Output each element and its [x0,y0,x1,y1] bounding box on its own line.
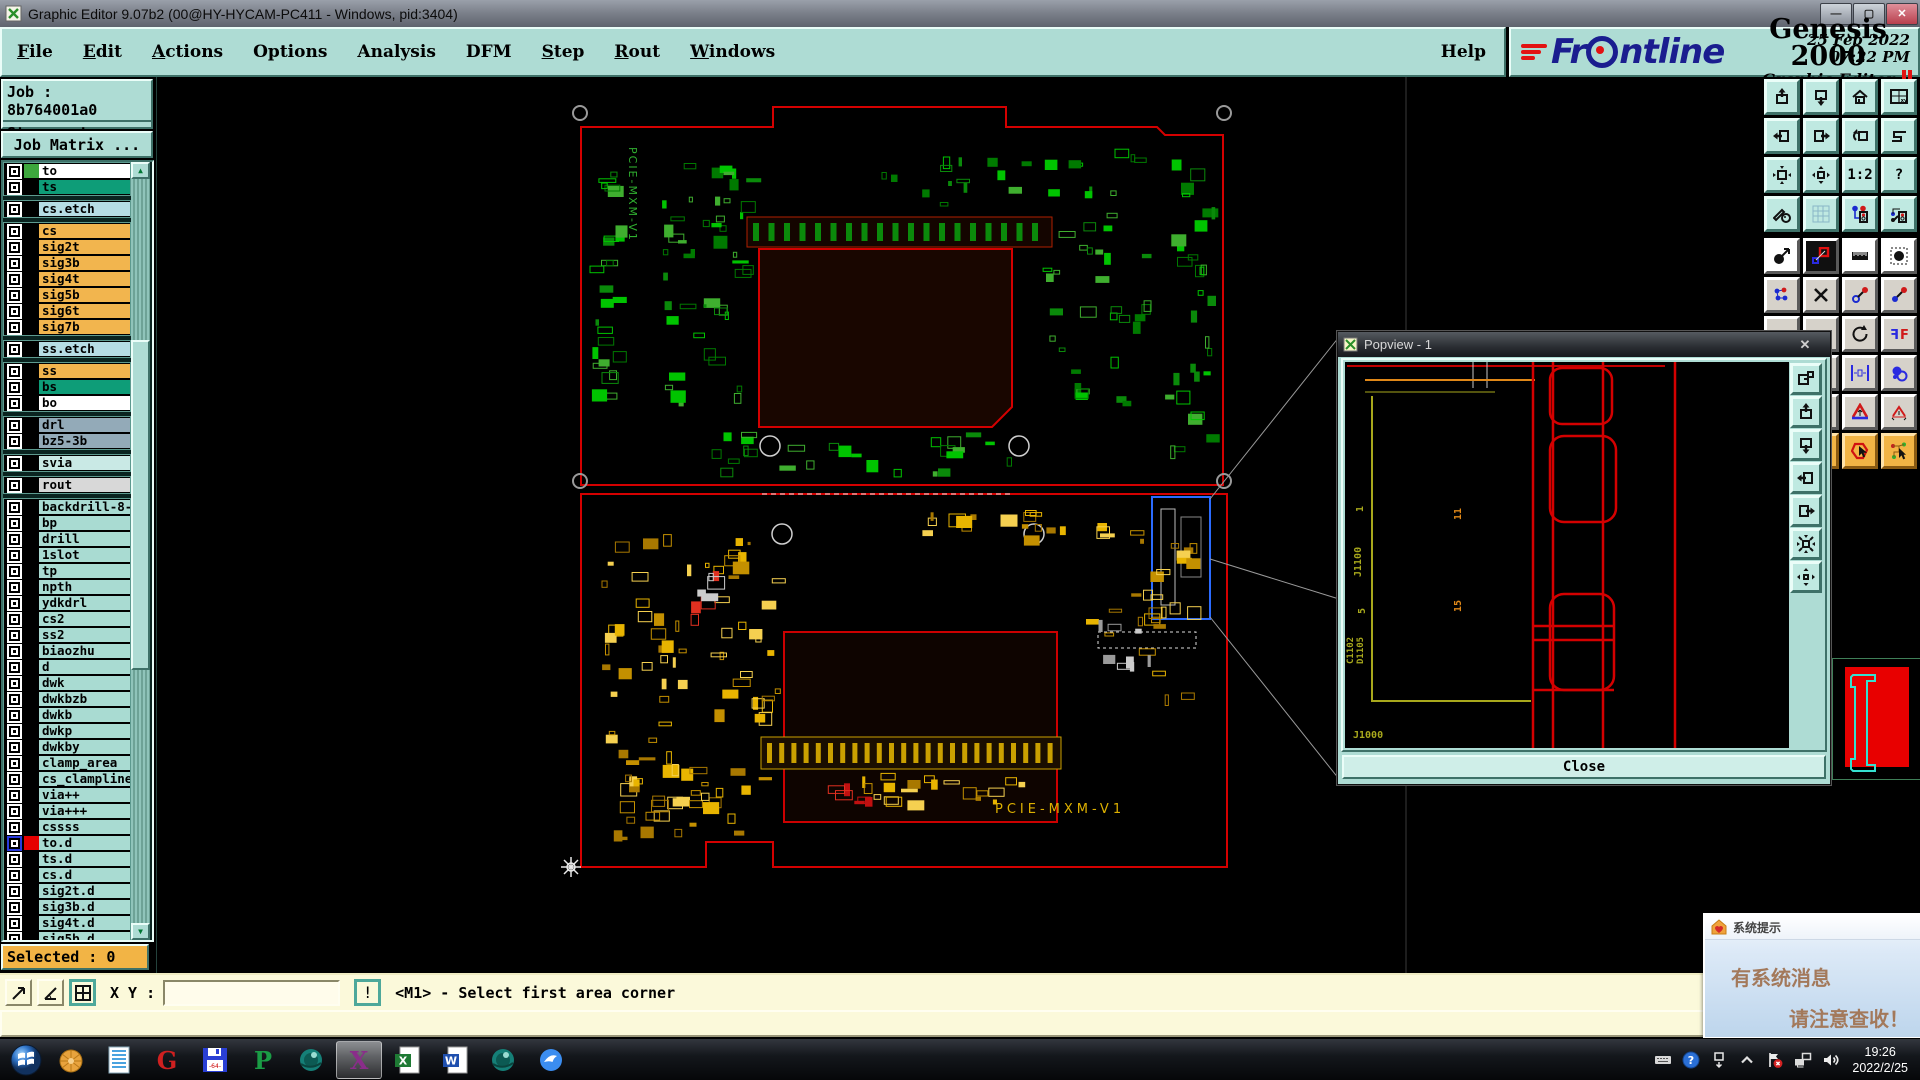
notification-line1: 有系统消息 [1731,962,1920,991]
svg-text:PCIE-MXM-V1: PCIE-MXM-V1 [626,147,639,242]
popview-pan-down-button[interactable] [1790,429,1822,461]
layer-row-dwkb[interactable]: dwkb [4,707,130,723]
layer-name[interactable]: npth [39,580,130,594]
layer-color-swatch[interactable] [24,288,39,302]
layer-color-swatch[interactable] [24,628,39,642]
layer-name[interactable]: cs2 [39,612,130,626]
select-feature-button[interactable] [1764,238,1800,274]
layer-row-sig4t[interactable]: sig4t [4,271,130,287]
layer-checkbox[interactable] [7,272,22,287]
svg-text:W: W [445,1055,457,1068]
layer-color-swatch[interactable] [24,342,39,356]
layer-list: totscs.etchcssig2tsig3bsig4tsig5bsig6tsi… [1,160,154,942]
layer-name[interactable]: d [39,660,130,674]
layer-name[interactable]: sig3b.d [39,900,130,914]
scale-1-2-button[interactable]: 1:2 [1842,157,1878,193]
layer-checkbox[interactable] [7,596,22,611]
layer-name[interactable]: drl [39,418,130,432]
layer-name[interactable]: to [39,164,130,178]
layer-row-ts.d[interactable]: ts.d [4,851,130,867]
layer-color-swatch[interactable] [24,272,39,286]
taskbar-backup-64-icon[interactable]: -64- [192,1041,238,1079]
menu-rout[interactable]: Rout [614,42,660,62]
layer-row-sig6t[interactable]: sig6t [4,303,130,319]
layer-row-ss[interactable]: ss [4,363,130,379]
layer-color-swatch[interactable] [24,548,39,562]
copy-point-button[interactable] [1842,277,1878,313]
mirror-ff-button[interactable]: FF [1881,316,1917,352]
layer-checkbox[interactable] [7,478,22,493]
prompt-message: <M1> - Select first area corner [395,984,675,1002]
scroll-up-button[interactable]: ▲ [131,162,150,179]
layer-group: drlbz5-3b [3,416,131,450]
layer-name[interactable]: sig4t [39,272,130,286]
layer-name[interactable]: drill [39,532,130,546]
layer-checkbox[interactable] [7,418,22,433]
layer-checkbox[interactable] [7,660,22,675]
layer-row-to[interactable]: to [4,163,130,179]
scroll-thumb[interactable] [131,340,150,670]
pan-up-button[interactable] [1764,79,1800,115]
popview-close-x[interactable]: ✕ [1788,337,1822,353]
layer-color-swatch[interactable] [24,418,39,432]
layer-checkbox[interactable] [7,644,22,659]
layer-color-swatch[interactable] [24,456,39,470]
layer-checkbox[interactable] [7,612,22,627]
layer-color-swatch[interactable] [24,434,39,448]
layer-row-cs[interactable]: cs [4,223,130,239]
layer-name[interactable]: sig4t.d [39,916,130,930]
layer-row-sig2t.d[interactable]: sig2t.d [4,883,130,899]
pv-label-pin1: 1 [1355,506,1366,512]
scroll-down-button[interactable]: ▼ [131,923,150,940]
overlap-circles-button[interactable] [1881,355,1917,391]
menu-options[interactable]: Options [253,42,327,62]
layer-checkbox[interactable] [7,320,22,335]
layer-checkbox[interactable] [7,708,22,723]
layer-group: rout [3,476,131,494]
layer-color-swatch[interactable] [24,240,39,254]
layer-row-to.d[interactable]: to.d [4,835,130,851]
net-colors-2-button[interactable] [1881,196,1917,232]
layer-name[interactable]: ts [39,180,130,194]
highlight-4-button[interactable] [1881,433,1917,469]
layer-row-via+++[interactable]: via+++ [4,803,130,819]
taskbar-genesis-launcher-icon[interactable]: G [144,1041,190,1079]
layer-checkbox[interactable] [7,628,22,643]
layer-checkbox[interactable] [7,288,22,303]
menu-windows[interactable]: Windows [690,42,775,62]
layer-row-ss.etch[interactable]: ss.etch [4,341,130,357]
layer-color-swatch[interactable] [24,596,39,610]
layer-checkbox[interactable] [7,676,22,691]
notification-title: 系统提示 [1733,919,1781,936]
menu-actions[interactable]: Actions [152,42,223,62]
layer-row-drill[interactable]: drill [4,531,130,547]
layer-row-1slot[interactable]: 1slot [4,547,130,563]
layer-checkbox[interactable] [7,500,22,515]
layer-row-sig3b[interactable]: sig3b [4,255,130,271]
layer-name[interactable]: rout [39,478,130,492]
menu-step[interactable]: Step [542,42,585,62]
grid-toggle-button[interactable] [1803,196,1839,232]
layer-name[interactable]: to.d [39,836,130,850]
layer-checkbox[interactable] [7,240,22,255]
layer-checkbox[interactable] [7,788,22,803]
tray-help-icon[interactable]: ? [1680,1049,1702,1071]
layer-color-swatch[interactable] [24,532,39,546]
layer-name[interactable]: svia [39,456,130,470]
layer-row-sig5b[interactable]: sig5b [4,287,130,303]
tray-flag-alert-icon[interactable] [1764,1049,1786,1071]
layer-checkbox[interactable] [7,804,22,819]
layer-name[interactable]: ss.etch [39,342,130,356]
layer-color-swatch[interactable] [24,820,39,834]
svg-text:F: F [1890,328,1899,343]
layer-color-swatch[interactable] [24,692,39,706]
layer-name[interactable]: cs_clampline [39,772,130,786]
layer-checkbox[interactable] [7,740,22,755]
layer-checkbox[interactable] [7,516,22,531]
job-matrix-button[interactable]: Job Matrix ... [1,131,153,158]
layer-scrollbar[interactable]: ▲ ▼ [131,162,150,940]
layer-color-swatch[interactable] [24,644,39,658]
layer-row-cssss[interactable]: cssss [4,819,130,835]
layer-color-swatch[interactable] [24,564,39,578]
tray-network-icon[interactable] [1792,1049,1814,1071]
layer-checkbox[interactable] [7,180,22,195]
pv-label-d1105: D1105 [1356,637,1366,664]
layer-name[interactable]: sig6t [39,304,130,318]
taskbar-clock[interactable]: 19:26 2022/2/25 [1852,1044,1908,1076]
font-a-small-button[interactable] [1881,394,1917,430]
layer-row-via++[interactable]: via++ [4,787,130,803]
svg-text:-64-: -64- [209,1063,221,1070]
layer-color-swatch[interactable] [24,478,39,492]
layer-name[interactable]: bs [39,380,130,394]
logo-o-icon [1586,36,1618,68]
layer-color-swatch[interactable] [24,580,39,594]
angle-measure-button[interactable] [37,979,64,1006]
layer-color-swatch[interactable] [24,676,39,690]
taskbar-excel-icon[interactable]: X [384,1041,430,1079]
taskbar-cam-tool-2-icon[interactable] [480,1041,526,1079]
layer-name[interactable]: sig2t [39,240,130,254]
layer-row-svia[interactable]: svia [4,455,130,471]
menu-edit[interactable]: Edit [83,42,122,62]
system-notification[interactable]: 系统提示 有系统消息 请注意查收！ [1703,913,1920,1039]
layer-checkbox[interactable] [7,820,22,835]
layer-color-swatch[interactable] [24,836,39,850]
resize-arrow-button[interactable] [5,979,32,1006]
layer-checkbox[interactable] [7,256,22,271]
layer-name[interactable]: via+++ [39,804,130,818]
rotate-feature-button[interactable] [1842,316,1878,352]
layer-row-sig4t.d[interactable]: sig4t.d [4,915,130,931]
net-points-button[interactable] [1764,277,1800,313]
layer-color-swatch[interactable] [24,320,39,334]
xy-input[interactable] [163,980,340,1006]
layer-row-drl[interactable]: drl [4,417,130,433]
net-colors-1-button[interactable] [1842,196,1878,232]
layer-name[interactable]: sig5b [39,288,130,302]
layer-name[interactable]: biaozhu [39,644,130,658]
layer-checkbox[interactable] [7,900,22,915]
tray-window-flip-icon[interactable] [1708,1049,1730,1071]
layer-row-biaozhu[interactable]: biaozhu [4,643,130,659]
layer-color-swatch[interactable] [24,256,39,270]
layer-color-swatch[interactable] [24,500,39,514]
layer-name[interactable]: ss [39,364,130,378]
layer-name[interactable]: ss2 [39,628,130,642]
alert-button[interactable]: ! [354,979,381,1006]
layer-checkbox[interactable] [7,756,22,771]
layer-name[interactable]: dwkb [39,708,130,722]
start-button[interactable] [6,1040,46,1080]
notification-line2: 请注意查收！ [1789,1003,1920,1032]
pv-label-j1100: J1100 [1353,547,1364,577]
layer-row-dwk[interactable]: dwk [4,675,130,691]
layer-checkbox[interactable] [7,916,22,931]
help-query-button[interactable]: ? [1881,157,1917,193]
view-home-button[interactable] [1842,79,1878,115]
layer-row-cs_clampline[interactable]: cs_clampline [4,771,130,787]
layer-row-bo[interactable]: bo [4,395,130,411]
layer-name[interactable]: ts.d [39,852,130,866]
layer-checkbox[interactable] [7,164,22,179]
layer-row-npth[interactable]: npth [4,579,130,595]
delete-feature-button[interactable] [1803,277,1839,313]
layer-color-swatch[interactable] [24,916,39,930]
layer-row-tp[interactable]: tp [4,563,130,579]
layer-checkbox[interactable] [7,932,22,943]
taskbar-notes-app-icon[interactable] [96,1041,142,1079]
highlight-3-button[interactable] [1842,433,1878,469]
layer-checkbox[interactable] [7,456,22,471]
clock-time: 19:26 [1852,1044,1908,1060]
pan-down-button[interactable] [1803,79,1839,115]
layer-color-swatch[interactable] [24,516,39,530]
layer-checkbox[interactable] [7,692,22,707]
symbol-preview [1832,658,1920,780]
layer-row-bp[interactable]: bp [4,515,130,531]
layer-color-swatch[interactable] [24,164,39,178]
menu-analysis[interactable]: Analysis [357,42,436,62]
layer-color-swatch[interactable] [24,788,39,802]
view-window-xy-button[interactable]: xy [1881,79,1917,115]
layer-name[interactable]: cs [39,224,130,238]
taskbar-word-icon[interactable]: W [432,1041,478,1079]
layer-color-swatch[interactable] [24,180,39,194]
layer-color-swatch[interactable] [24,756,39,770]
layer-name[interactable]: bp [39,516,130,530]
popview-pan-right-button[interactable] [1790,495,1822,527]
move-point-button[interactable] [1881,277,1917,313]
message-bar [0,1010,1920,1037]
layer-checkbox[interactable] [7,532,22,547]
layer-name[interactable]: sig3b [39,256,130,270]
layer-color-swatch[interactable] [24,868,39,882]
layer-checkbox[interactable] [7,852,22,867]
layer-name[interactable]: clamp_area [39,756,130,770]
layer-name[interactable]: dwkbzb [39,692,130,706]
draw-tools-button[interactable] [1764,196,1800,232]
layer-checkbox[interactable] [7,772,22,787]
popview-icon [1343,337,1358,352]
layer-row-d[interactable]: d [4,659,130,675]
ruler-measure-button[interactable] [1842,238,1878,274]
taskbar-paltalk-app-icon[interactable]: P [240,1041,286,1079]
pan-right-button[interactable] [1803,118,1839,154]
layer-name[interactable]: 1slot [39,548,130,562]
layer-color-swatch[interactable] [24,612,39,626]
menu-row: FileEditActionsOptionsAnalysisDFMStepRou… [0,27,1920,77]
layer-row-sig5b.d[interactable]: sig5b.d [4,931,130,942]
layer-name[interactable]: sig5b.d [39,932,130,942]
layer-color-swatch[interactable] [24,900,39,914]
layer-name[interactable]: dwk [39,676,130,690]
layer-color-swatch[interactable] [24,380,39,394]
layer-row-bs[interactable]: bs [4,379,130,395]
popview-zoom-expand-button[interactable] [1790,561,1822,593]
layer-checkbox[interactable] [7,304,22,319]
layer-color-swatch[interactable] [24,724,39,738]
menu-dfm[interactable]: DFM [466,42,512,62]
view-back-button[interactable] [1842,118,1878,154]
layer-name[interactable]: ydkdrl [39,596,130,610]
layer-color-swatch[interactable] [24,740,39,754]
taskbar-cam-tool-icon[interactable] [288,1041,334,1079]
layer-color-swatch[interactable] [24,804,39,818]
taskbar-thunder-app-icon[interactable] [528,1041,574,1079]
selected-count: Selected : 0 [1,944,149,970]
popview-pan-left-button[interactable] [1790,462,1822,494]
layer-row-clamp_area[interactable]: clamp_area [4,755,130,771]
popview-canvas[interactable]: 1 J1100 5 C1102 D1105 11 15 J1000 [1345,362,1789,748]
layer-checkbox[interactable] [7,724,22,739]
layer-name[interactable]: cs.d [39,868,130,882]
layer-name[interactable]: backdrill-8- [39,500,130,514]
layer-name[interactable]: cssss [39,820,130,834]
pv-label-pin15: 15 [1453,600,1464,612]
layer-color-swatch[interactable] [24,304,39,318]
layer-name[interactable]: dwkby [39,740,130,754]
layer-color-swatch[interactable] [24,708,39,722]
layer-name[interactable]: via++ [39,788,130,802]
layer-row-cs.etch[interactable]: cs.etch [4,201,130,217]
layer-color-swatch[interactable] [24,396,39,410]
layer-name[interactable]: sig7b [39,320,130,334]
taskbar-exceed-x-icon[interactable]: X [336,1041,382,1079]
layer-checkbox[interactable] [7,884,22,899]
layer-name[interactable]: bo [39,396,130,410]
pad-select-button[interactable] [1881,238,1917,274]
layer-row-ts[interactable]: ts [4,179,130,195]
shape-edit-button[interactable] [1803,238,1839,274]
pv-label-c1102: C1102 [1346,637,1356,664]
job-label: Job : 8b764001a0 [3,81,151,122]
layer-row-cs.d[interactable]: cs.d [4,867,130,883]
layer-name[interactable]: sig2t.d [39,884,130,898]
layer-color-swatch[interactable] [24,884,39,898]
layer-checkbox[interactable] [7,564,22,579]
layer-row-cs2[interactable]: cs2 [4,611,130,627]
layer-checkbox[interactable] [7,548,22,563]
layer-name[interactable]: tp [39,564,130,578]
pv-label-j1000: J1000 [1353,730,1383,741]
tray-volume-icon[interactable] [1820,1049,1842,1071]
serpentine-button[interactable] [1881,118,1917,154]
layer-row-backdrill-8-[interactable]: backdrill-8- [4,499,130,515]
layer-checkbox[interactable] [7,380,22,395]
job-step-panel: Job : 8b764001a0 Step: set [1,79,153,129]
layer-checkbox[interactable] [7,224,22,239]
zoom-in-button[interactable] [1764,157,1800,193]
layer-name[interactable]: bz5-3b [39,434,130,448]
popview-close-button[interactable]: Close [1342,755,1826,779]
popview-toolstrip [1789,362,1823,748]
pan-left-button[interactable] [1764,118,1800,154]
layer-checkbox[interactable] [7,580,22,595]
layer-row-dwkby[interactable]: dwkby [4,739,130,755]
layer-color-swatch[interactable] [24,224,39,238]
layer-name[interactable]: cs.etch [39,202,130,216]
font-a-large-button[interactable] [1842,394,1878,430]
tray-keyboard-icon[interactable] [1652,1049,1674,1071]
layer-row-ydkdrl[interactable]: ydkdrl [4,595,130,611]
layer-row-bz5-3b[interactable]: bz5-3b [4,433,130,449]
notification-icon [1710,918,1728,936]
layer-checkbox[interactable] [7,342,22,357]
layer-row-sig7b[interactable]: sig7b [4,319,130,335]
menu-help[interactable]: Help [1441,42,1486,62]
layer-color-swatch[interactable] [24,932,39,942]
grid-snap-button[interactable] [69,979,96,1006]
tray-chevron-up-icon[interactable] [1736,1049,1758,1071]
measure-gap-button[interactable] [1842,355,1878,391]
layer-row-rout[interactable]: rout [4,477,130,493]
zoom-out-button[interactable] [1803,157,1839,193]
layer-checkbox[interactable] [7,202,22,217]
layer-color-swatch[interactable] [24,364,39,378]
popview-zoom-contract-button[interactable] [1790,528,1822,560]
popview-pan-up-button[interactable] [1790,396,1822,428]
popview-window-export-button[interactable] [1790,363,1822,395]
layer-row-sig2t[interactable]: sig2t [4,239,130,255]
layer-color-swatch[interactable] [24,772,39,786]
taskbar-shell-app-icon[interactable] [48,1041,94,1079]
layer-row-dwkp[interactable]: dwkp [4,723,130,739]
window-titlebar: Graphic Editor 9.07b2 (00@HY-HYCAM-PC411… [0,0,1920,27]
layer-group: tots [3,162,131,196]
xy-label: X Y : [110,984,155,1002]
layer-color-swatch[interactable] [24,660,39,674]
layer-color-swatch[interactable] [24,852,39,866]
layer-row-ss2[interactable]: ss2 [4,627,130,643]
layer-name[interactable]: dwkp [39,724,130,738]
layer-checkbox[interactable] [7,868,22,883]
popview-dialog[interactable]: Popview - 1 ✕ 1 J1100 5 C1102 D1105 11 1… [1337,331,1831,785]
layer-checkbox[interactable] [7,396,22,411]
layer-color-swatch[interactable] [24,202,39,216]
layer-checkbox[interactable] [7,836,22,851]
menu-file[interactable]: File [17,42,53,62]
layer-checkbox[interactable] [7,364,22,379]
layer-row-dwkbzb[interactable]: dwkbzb [4,691,130,707]
popview-titlebar[interactable]: Popview - 1 ✕ [1338,332,1830,357]
layer-checkbox[interactable] [7,434,22,449]
layer-row-sig3b.d[interactable]: sig3b.d [4,899,130,915]
